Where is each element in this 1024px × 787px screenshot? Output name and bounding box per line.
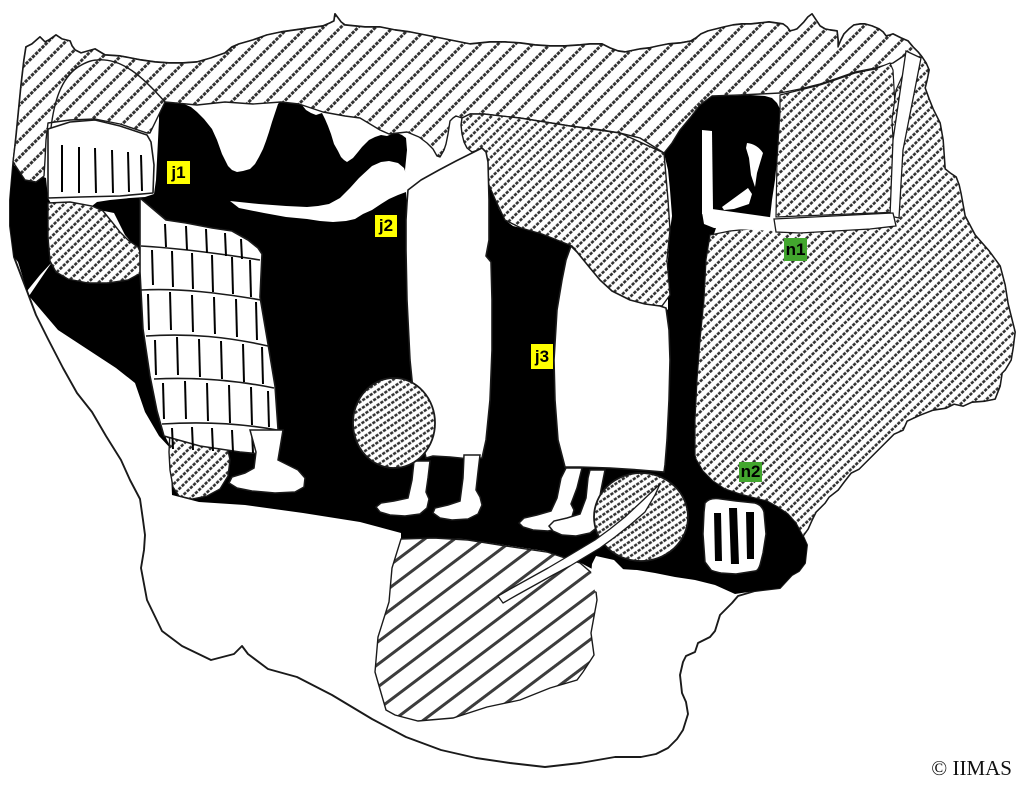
- svg-text:j3: j3: [534, 347, 549, 366]
- svg-text:© IIMAS: © IIMAS: [931, 756, 1012, 780]
- svg-text:n1: n1: [786, 240, 806, 259]
- svg-text:j1: j1: [170, 163, 185, 182]
- svg-text:n2: n2: [741, 462, 761, 481]
- svg-text:j2: j2: [378, 216, 393, 235]
